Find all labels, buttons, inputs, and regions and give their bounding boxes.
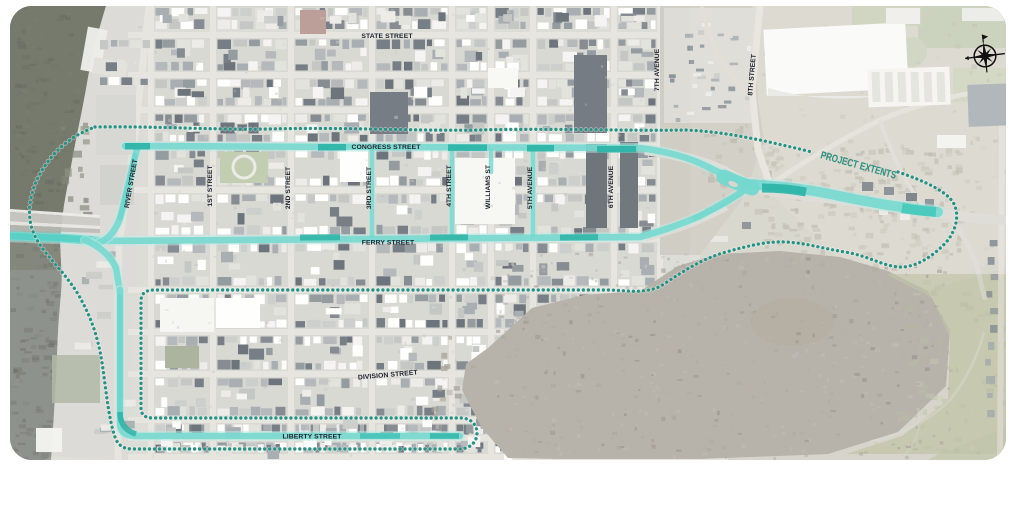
svg-text:7TH AVENUE: 7TH AVENUE <box>654 48 661 91</box>
svg-text:5TH AVENUE: 5TH AVENUE <box>527 166 534 209</box>
svg-text:1ST STREET: 1ST STREET <box>207 165 214 207</box>
svg-text:WILLIAMS ST: WILLIAMS ST <box>485 164 492 209</box>
svg-text:LIBERTY STREET: LIBERTY STREET <box>282 434 342 441</box>
svg-text:FERRY STREET: FERRY STREET <box>362 240 415 247</box>
svg-text:2ND STREET: 2ND STREET <box>285 166 292 209</box>
svg-text:4TH STREET: 4TH STREET <box>446 164 453 206</box>
svg-text:6TH AVENUE: 6TH AVENUE <box>608 165 615 208</box>
svg-text:3RD STREET: 3RD STREET <box>366 166 373 209</box>
svg-text:CONGRESS STREET: CONGRESS STREET <box>351 144 421 151</box>
svg-text:STATE STREET: STATE STREET <box>361 33 413 40</box>
